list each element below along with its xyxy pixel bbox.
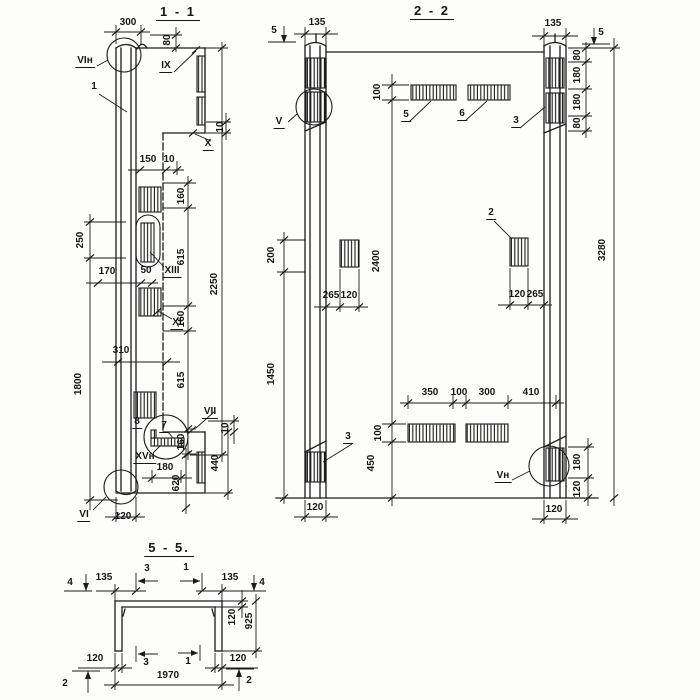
drawing-canvas: 1 - 1 300 80 VIн 1 IX 10 X 150 10 160 61… bbox=[0, 0, 700, 700]
dim-135-left: 135 bbox=[309, 18, 326, 28]
cut-mark-4-left: 4 bbox=[67, 578, 73, 588]
cut-mark-3-bottom: 3 bbox=[143, 658, 149, 668]
dim-150: 150 bbox=[140, 155, 157, 165]
dim-620: 620 bbox=[172, 475, 182, 492]
dim-1800: 1800 bbox=[74, 373, 84, 395]
item-3-bottom: 3 bbox=[343, 432, 353, 444]
dim-135-r55: 135 bbox=[222, 573, 239, 583]
dim-450: 450 bbox=[367, 455, 377, 472]
mark-vii: VII bbox=[202, 407, 218, 419]
mark-vi-n-top: VIн bbox=[75, 56, 95, 68]
dim-310: 310 bbox=[113, 346, 130, 356]
cut-mark-1-top: 1 bbox=[183, 563, 189, 573]
dim-120-s11: 120 bbox=[115, 512, 132, 522]
dim-50: 50 bbox=[140, 266, 151, 276]
dim-3280-total: 3280 bbox=[598, 239, 608, 261]
dim-410: 410 bbox=[523, 388, 540, 398]
section-title-1-1: 1 - 1 bbox=[156, 5, 200, 21]
dim-440: 440 bbox=[211, 455, 221, 472]
dim-120-b: 120 bbox=[509, 290, 526, 300]
item-3-top: 3 bbox=[511, 116, 521, 128]
dim-120-br: 120 bbox=[546, 505, 563, 515]
cut-mark-4-right: 4 bbox=[259, 578, 265, 588]
dim-120-c: 120 bbox=[573, 481, 583, 498]
mark-v-n: Vн bbox=[495, 471, 512, 483]
dim-925: 925 bbox=[245, 613, 255, 630]
dim-80-a: 80 bbox=[573, 49, 583, 60]
dim-350: 350 bbox=[422, 388, 439, 398]
cut-mark-3-top: 3 bbox=[144, 564, 150, 574]
dim-120-bl: 120 bbox=[307, 503, 324, 513]
dim-180-b: 180 bbox=[573, 94, 583, 111]
dim-100-v: 100 bbox=[374, 425, 384, 442]
mark-v: V bbox=[274, 117, 285, 129]
mark-xiii: XIII bbox=[162, 266, 181, 278]
section-title-2-2: 2 - 2 bbox=[410, 4, 454, 20]
mark-xv-n: XVн bbox=[133, 452, 156, 464]
dim-615-a: 615 bbox=[177, 249, 187, 266]
dim-100-top: 100 bbox=[373, 84, 383, 101]
dim-200: 200 bbox=[267, 247, 277, 264]
item-2: 2 bbox=[486, 208, 496, 220]
dim-1970: 1970 bbox=[157, 671, 179, 681]
cut-mark-5-left: 5 bbox=[271, 26, 277, 36]
mark-ix: IX bbox=[159, 61, 172, 73]
dim-180-bottom: 180 bbox=[157, 463, 174, 473]
section-title-5-5: 5 - 5. bbox=[144, 541, 194, 557]
dim-170: 170 bbox=[99, 267, 116, 277]
dim-120-flange: 120 bbox=[228, 609, 238, 626]
dim-80-b: 80 bbox=[573, 117, 583, 128]
dim-135-l55: 135 bbox=[96, 573, 113, 583]
dim-250: 250 bbox=[76, 232, 86, 249]
dim-80: 80 bbox=[163, 34, 173, 45]
dim-300-bottom: 300 bbox=[479, 388, 496, 398]
drawing-labels: 1 - 1 300 80 VIн 1 IX 10 X 150 10 160 61… bbox=[0, 0, 700, 700]
item-1: 1 bbox=[91, 82, 97, 92]
dim-120-bl55: 120 bbox=[87, 654, 104, 664]
mark-x: X bbox=[203, 139, 214, 151]
cut-mark-2-right: 2 bbox=[246, 676, 252, 686]
dim-300-top: 300 bbox=[120, 18, 137, 28]
dim-100-bottom: 100 bbox=[451, 388, 468, 398]
mark-vi-bottom: VI bbox=[77, 510, 90, 522]
dim-160-c: 160 bbox=[177, 434, 187, 451]
item-8: 8 bbox=[132, 417, 142, 429]
item-5: 5 bbox=[401, 110, 411, 122]
item-6: 6 bbox=[457, 109, 467, 121]
dim-2250-total: 2250 bbox=[210, 273, 220, 295]
cut-mark-1-bottom: 1 bbox=[185, 657, 191, 667]
dim-135-right: 135 bbox=[545, 19, 562, 29]
dim-160-a: 160 bbox=[177, 188, 187, 205]
mark-xi: XI bbox=[170, 318, 183, 330]
dim-180-c: 180 bbox=[573, 454, 583, 471]
dim-180-a: 180 bbox=[573, 67, 583, 84]
dim-120-a: 120 bbox=[341, 291, 358, 301]
dim-1450: 1450 bbox=[267, 363, 277, 385]
cut-mark-5-right: 5 bbox=[598, 28, 604, 38]
dim-2400: 2400 bbox=[372, 250, 382, 272]
cut-mark-2-left: 2 bbox=[62, 679, 68, 689]
dim-265-b: 265 bbox=[527, 290, 544, 300]
dim-265-a: 265 bbox=[323, 291, 340, 301]
dim-10-a: 10 bbox=[216, 121, 226, 132]
dim-10-c: 10 bbox=[221, 422, 231, 433]
dim-615-b: 615 bbox=[177, 372, 187, 389]
dim-120-br55: 120 bbox=[230, 654, 247, 664]
dim-10-b: 10 bbox=[163, 155, 174, 165]
item-7: 7 bbox=[159, 421, 169, 433]
